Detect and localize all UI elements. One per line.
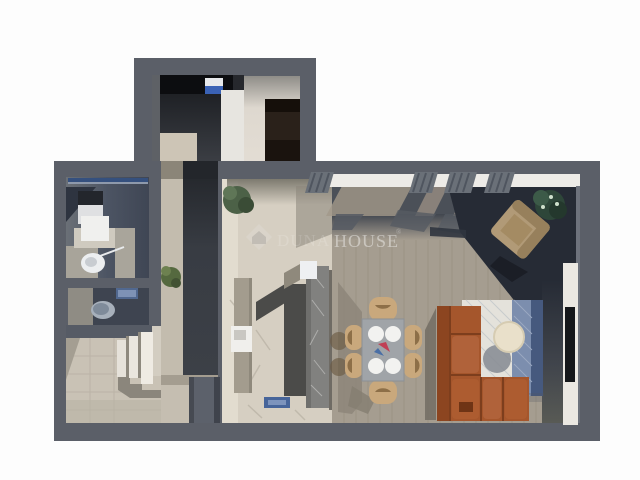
svg-text:DUNA: DUNA	[277, 231, 330, 250]
svg-text:®: ®	[396, 228, 402, 236]
svg-text:HOUSE: HOUSE	[334, 231, 399, 251]
